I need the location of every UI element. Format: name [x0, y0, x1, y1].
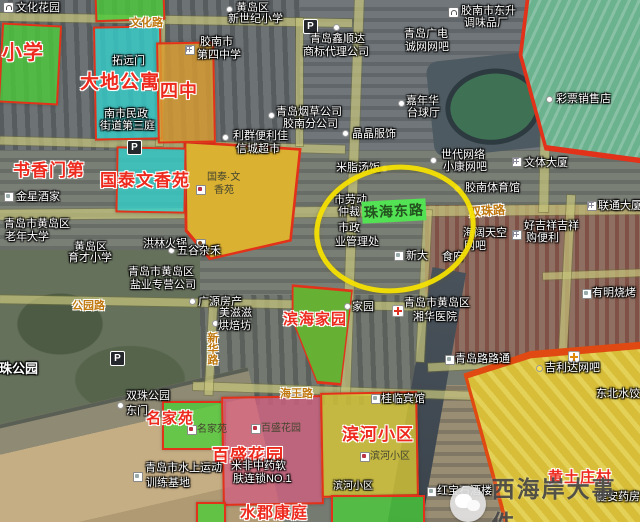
poi-haojixiang-1: 好吉祥吉祥 — [524, 220, 579, 232]
poi-shuishang-1: 青岛市水上运动 — [145, 462, 222, 474]
parking-icon: P — [110, 351, 125, 366]
wechat-icon — [450, 486, 486, 522]
poi-yancao-1: 青岛烟草公司 — [276, 106, 342, 118]
poi-meizizi-2: 烘焙坊 — [218, 320, 251, 332]
region-label-shuijun: 水郡康庭 — [240, 499, 308, 522]
poi-datimen: 拓远门 — [112, 55, 145, 67]
lock-icon — [3, 2, 14, 13]
poi-dot — [430, 157, 437, 164]
poi-liqun-2: 信城超市 — [236, 143, 280, 155]
poi-icon — [133, 472, 143, 482]
poi-sizhongschool-2: 第四中学 — [197, 49, 241, 61]
poi-qingdaolu: 青岛路路通 — [455, 353, 510, 365]
poi-jianianhua-2: 台球厅 — [407, 107, 440, 119]
poi-youming: 有明烧烤 — [592, 287, 636, 299]
poi-guilin: 桂临宾馆 — [381, 393, 425, 405]
poi-dot — [333, 24, 340, 31]
watermark: 西海岸大事件 — [450, 470, 640, 522]
poi-sizhongschool-1: 胶南市 — [200, 36, 233, 48]
building-icon — [185, 45, 195, 55]
poi-parkname: 双珠公园 — [0, 363, 38, 375]
poi-dot — [117, 402, 124, 409]
watermark-text: 西海岸大事件 — [492, 470, 640, 522]
poi-dot — [268, 112, 275, 119]
poi-yucai-2: 育才小学 — [68, 252, 112, 264]
region-label-xiaoxue: 小学 — [2, 36, 44, 65]
poi-laonian-1: 青岛市黄岛区 — [4, 218, 70, 230]
poi-mifei-1: 米非中药软 — [231, 460, 286, 472]
poi-xinshunda-1: 青岛鑫顺达 — [310, 33, 365, 45]
poi-xinshunda-2: 商标代理公司 — [303, 46, 369, 58]
poi-shidai-1: 世代网络 — [441, 149, 485, 161]
poi-jiayuan-right: 家园 — [352, 301, 374, 313]
region-label-dadi: 大地公寓 — [80, 67, 160, 94]
road-label-gongyuan: 公园路 — [72, 297, 105, 313]
poi-dot — [398, 100, 405, 107]
inner-label-binhe-small: 滨河小区 — [333, 481, 373, 493]
poi-hospital-1: 青岛市黄岛区 — [404, 297, 470, 309]
poi-yanye-1: 青岛市黄岛区 — [128, 266, 194, 278]
road-label-xinhua: 新华路 — [204, 332, 220, 365]
poi-tiyuguan: 胶南体育馆 — [465, 182, 520, 194]
poi-wenti: 文体大厦 — [524, 157, 568, 169]
inner-label-mingjia: 名家苑 — [197, 424, 227, 435]
poi-dongmen-2: 东门 — [126, 405, 148, 417]
building-icon — [512, 157, 522, 167]
road-label-haiwang: 海王路 — [280, 385, 313, 401]
poi-wenhuahuayuan: 文化花园 — [16, 2, 60, 14]
region-label-binhe: 滨河小区 — [342, 420, 414, 445]
poi-dot — [342, 130, 349, 137]
poi-guangdian-1: 青岛广电 — [404, 28, 448, 40]
region-label-sizhong: 四中 — [160, 77, 198, 103]
inner-label-baisheng: 百盛花园 — [261, 423, 301, 434]
lock-icon — [448, 7, 459, 18]
inner-label-guotai-1: 国泰·文 — [207, 172, 240, 183]
region-label-binhai: 滨海家园 — [283, 308, 347, 329]
parking-icon: P — [127, 140, 142, 155]
poi-hospital-2: 湘华医院 — [413, 311, 457, 323]
poi-icon — [4, 192, 14, 202]
poi-jingjing: 晶晶服饰 — [352, 128, 396, 140]
poi-dot — [226, 6, 233, 13]
poi-dot — [536, 365, 543, 372]
road-label-wenhua: 文化路 — [130, 14, 163, 30]
poi-dongbei: 东北水饺 — [596, 388, 640, 400]
poi-mifei-2: 肤连锁NO.1 — [233, 473, 292, 485]
region-bottom-green1 — [196, 502, 226, 522]
building-icon — [587, 201, 597, 211]
poi-wugu: 五谷杂禾 — [177, 245, 221, 257]
region-label-shuxiang: 书香门第 — [13, 156, 85, 181]
poi-jianianhua-1: 嘉年华 — [406, 95, 439, 107]
poi-dot — [546, 96, 553, 103]
poi-dongsheng-1: 胶南市东升 — [461, 5, 516, 17]
poi-guangdian-2: 诚网网吧 — [405, 41, 449, 53]
region-bottom-green2 — [331, 495, 425, 522]
estate-icon — [251, 424, 261, 434]
poi-haojixiang-2: 购便利 — [526, 232, 559, 244]
poi-dot — [189, 298, 196, 305]
poi-yancao-2: 胶南分公司 — [283, 118, 338, 130]
poi-dongmen-1: 双珠公园 — [126, 390, 170, 402]
poi-laonian-2: 老年大学 — [5, 231, 49, 243]
poi-shidai-2: 小康网吧 — [443, 161, 487, 173]
poi-yanye-2: 盐业专营公司 — [130, 279, 196, 291]
poi-liqun-1: 利群便利佳 — [233, 130, 288, 142]
poi-dot — [222, 134, 229, 141]
poi-minzheng-2: 街道第三庭 — [100, 120, 155, 132]
poi-icon — [582, 289, 592, 299]
parking-icon: P — [303, 19, 318, 34]
poi-dongsheng-2: 调味品厂 — [464, 17, 508, 29]
poi-caipiao: 彩票销售店 — [556, 93, 611, 105]
inner-label-guotai-2: 香苑 — [214, 185, 234, 196]
poi-icon — [371, 394, 381, 404]
poi-icon — [445, 355, 455, 365]
poi-icon — [427, 487, 437, 497]
poi-shuishang-2: 训练基地 — [146, 477, 190, 489]
poi-jinxing: 金星酒家 — [16, 191, 60, 203]
hospital-cross-icon — [392, 305, 404, 317]
poi-minzheng-1: 南市民政 — [104, 108, 148, 120]
poi-meizizi-1: 美滋滋 — [219, 307, 252, 319]
inner-label-binhe: 滨河小区 — [370, 451, 410, 462]
region-label-guotai: 国泰文香苑 — [100, 166, 190, 191]
estate-icon — [196, 185, 206, 195]
poi-xinshiji-2: 新世纪小学 — [228, 13, 283, 25]
estate-icon — [360, 452, 370, 462]
region-label-mingjia: 名家苑 — [146, 407, 194, 428]
poi-jilida: 吉利达网吧 — [545, 362, 600, 374]
building-icon — [512, 230, 522, 240]
map-canvas[interactable]: P P P 小学 大地公寓 四中 书香门第 国泰文香苑 滨海家园 名家苑 百盛花… — [0, 0, 640, 522]
poi-liantong: 联通大厦 — [598, 200, 640, 212]
